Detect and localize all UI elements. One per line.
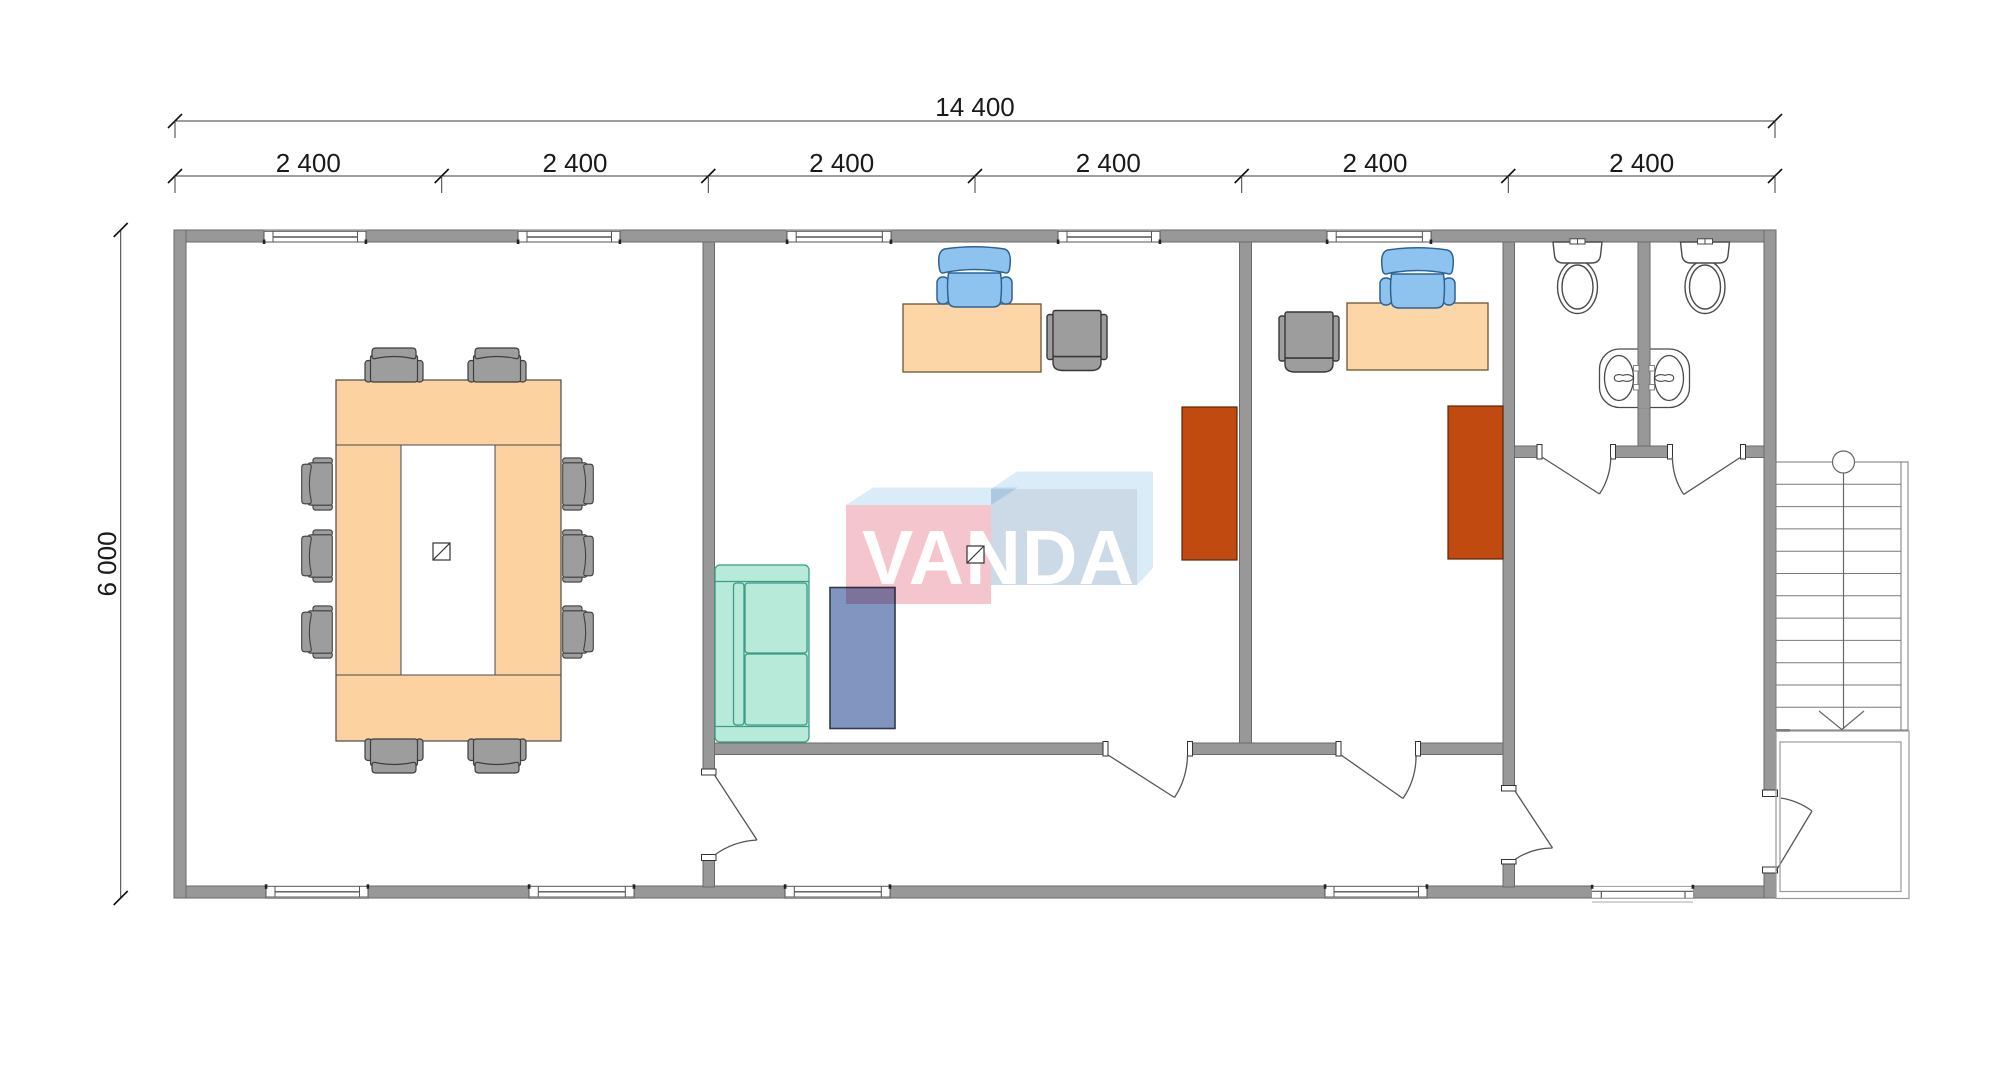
svg-text:6 000: 6 000 (92, 531, 122, 596)
svg-text:2 400: 2 400 (1342, 148, 1407, 178)
svg-text:VANDA: VANDA (862, 515, 1135, 601)
svg-text:2 400: 2 400 (542, 148, 607, 178)
svg-text:2 400: 2 400 (809, 148, 874, 178)
svg-text:2 400: 2 400 (1076, 148, 1141, 178)
svg-text:14 400: 14 400 (935, 92, 1015, 122)
svg-text:2 400: 2 400 (276, 148, 341, 178)
svg-text:2 400: 2 400 (1609, 148, 1674, 178)
